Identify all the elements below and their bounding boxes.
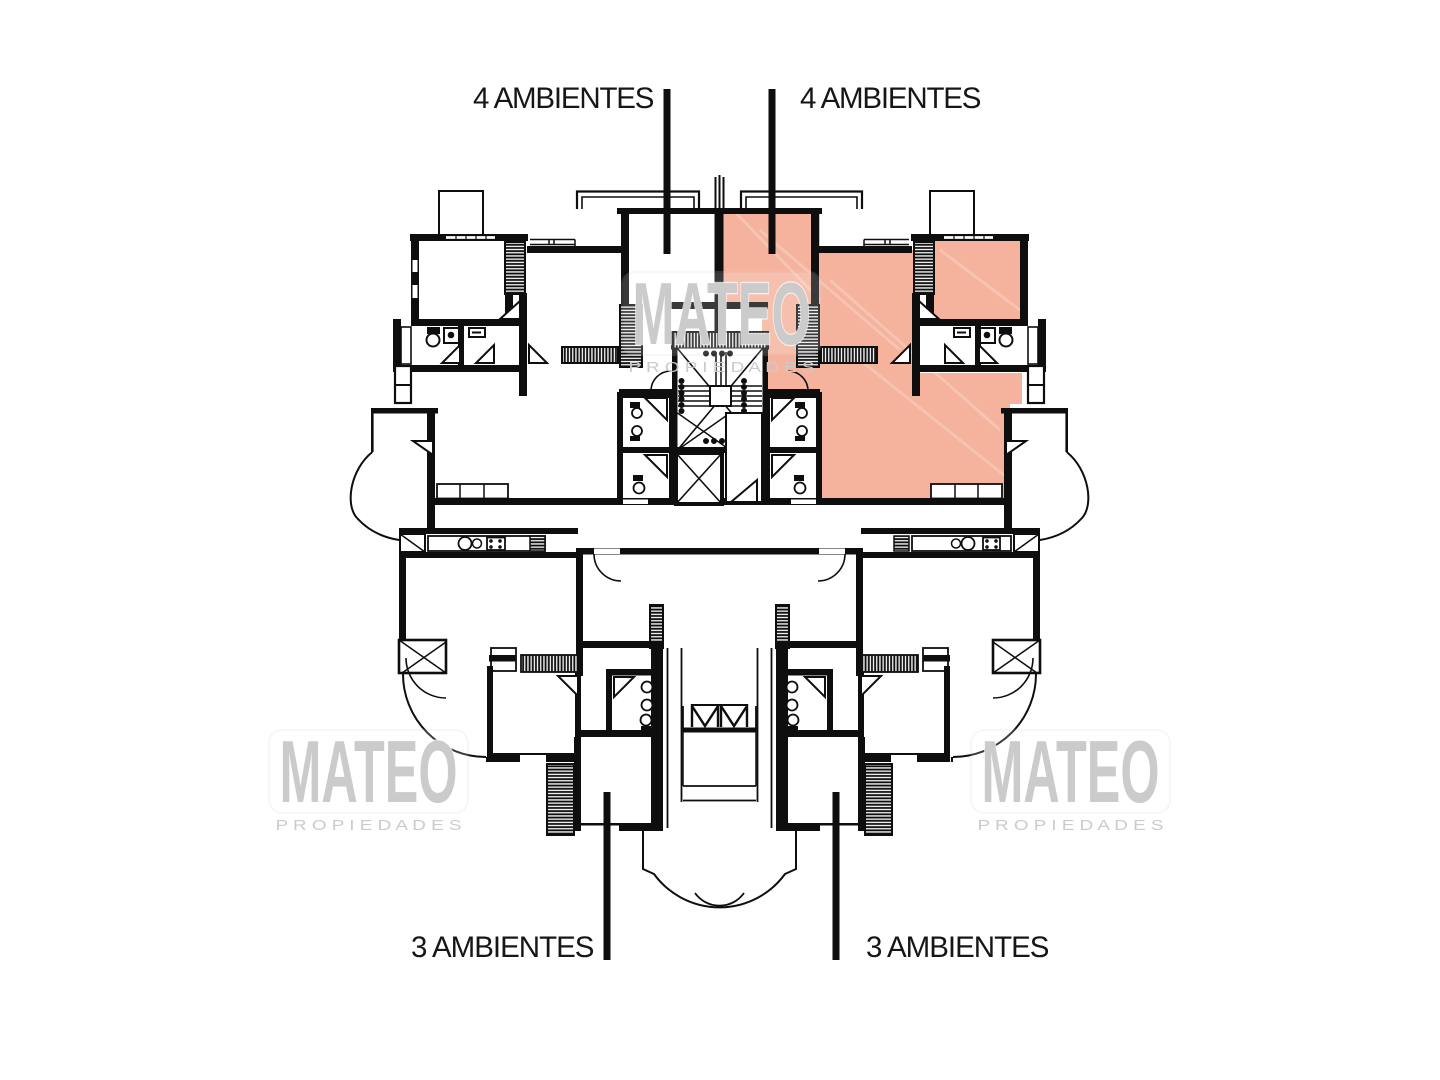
svg-text:4 AMBIENTES: 4 AMBIENTES <box>800 82 981 115</box>
svg-text:4 AMBIENTES: 4 AMBIENTES <box>473 82 654 115</box>
svg-text:P R O P I E D A D E S: P R O P I E D A D E S <box>978 817 1164 834</box>
svg-text:P R O P I E D A D E S: P R O P I E D A D E S <box>276 817 462 834</box>
svg-text:3 AMBIENTES: 3 AMBIENTES <box>866 931 1049 964</box>
svg-text:MATEO: MATEO <box>633 264 811 363</box>
svg-text:MATEO: MATEO <box>280 722 458 821</box>
svg-text:MATEO: MATEO <box>982 722 1160 821</box>
svg-text:3 AMBIENTES: 3 AMBIENTES <box>411 931 594 964</box>
svg-text:P R O P I E D A D E S: P R O P I E D A D E S <box>629 359 815 376</box>
